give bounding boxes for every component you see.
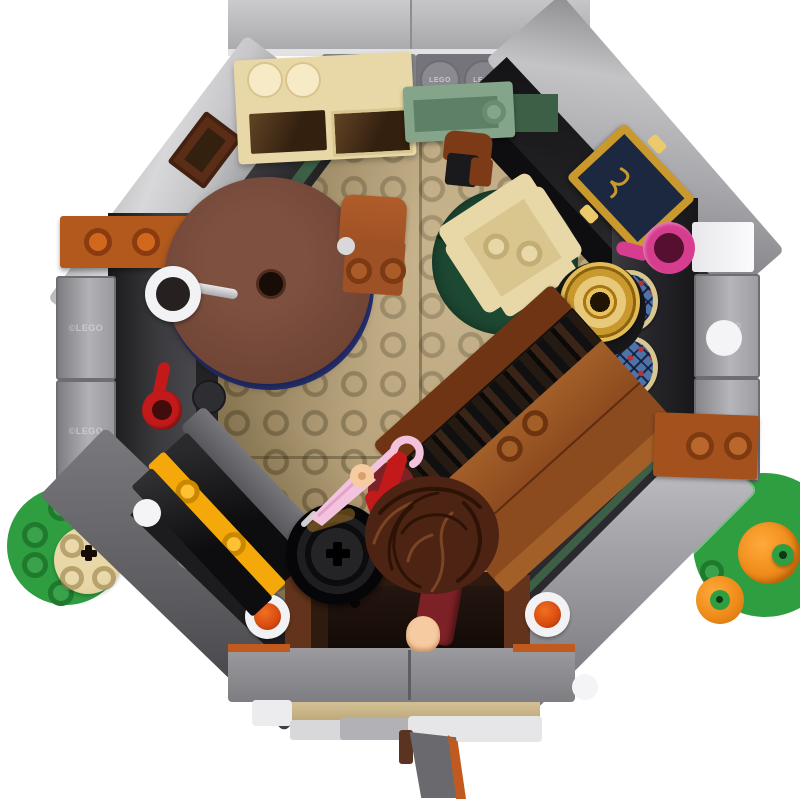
door-top-seam [408,650,411,700]
grass-stud [22,522,48,548]
dresser-glass-door [331,107,413,157]
table-center-hole [256,269,286,299]
wall-right-white-block [692,222,754,272]
barrel-axle-hole [333,542,342,566]
orange-shelf-stud [84,228,112,256]
connector-peg [337,237,355,255]
stump-stud [60,566,84,590]
door-top-row [228,648,575,702]
chair-stud [346,258,372,284]
pumpkin-stem-hole [716,596,723,603]
chair-stud [380,258,406,284]
door-orange-trim-left [228,644,290,652]
sage-shelf-stud [482,100,506,124]
orange-shelf-stud [132,228,160,256]
red-mug-hole [152,400,172,420]
metal-mug-hole [156,277,190,311]
dresser-stud [285,62,321,98]
orange-brick-stud [686,432,714,460]
stump-stud [92,566,116,590]
panel-embossing: ©LEGO [69,323,104,333]
minifig-hair-wig [362,473,502,599]
pumpkin-stem-hole [779,551,787,559]
grass-stud [22,552,48,578]
lantern-gem [534,601,561,628]
pink-mug-hole [654,233,684,263]
connector-peg [572,674,598,700]
connector-peg [133,499,161,527]
door-orange-trim-right [513,644,575,652]
small-chair-arm [469,157,494,187]
wall-left-outer-panel: ©LEGO [56,276,116,380]
connector-peg [706,320,742,356]
minifig-foot [406,616,440,652]
dresser-stud [247,62,283,98]
orange-brick-stud [724,432,752,460]
umbrella-crook-handle [394,440,420,464]
dresser-glass-door [249,110,327,154]
stump-axle-hole [85,545,92,561]
swirl-path [602,168,632,197]
threshold-white-left [252,700,292,726]
